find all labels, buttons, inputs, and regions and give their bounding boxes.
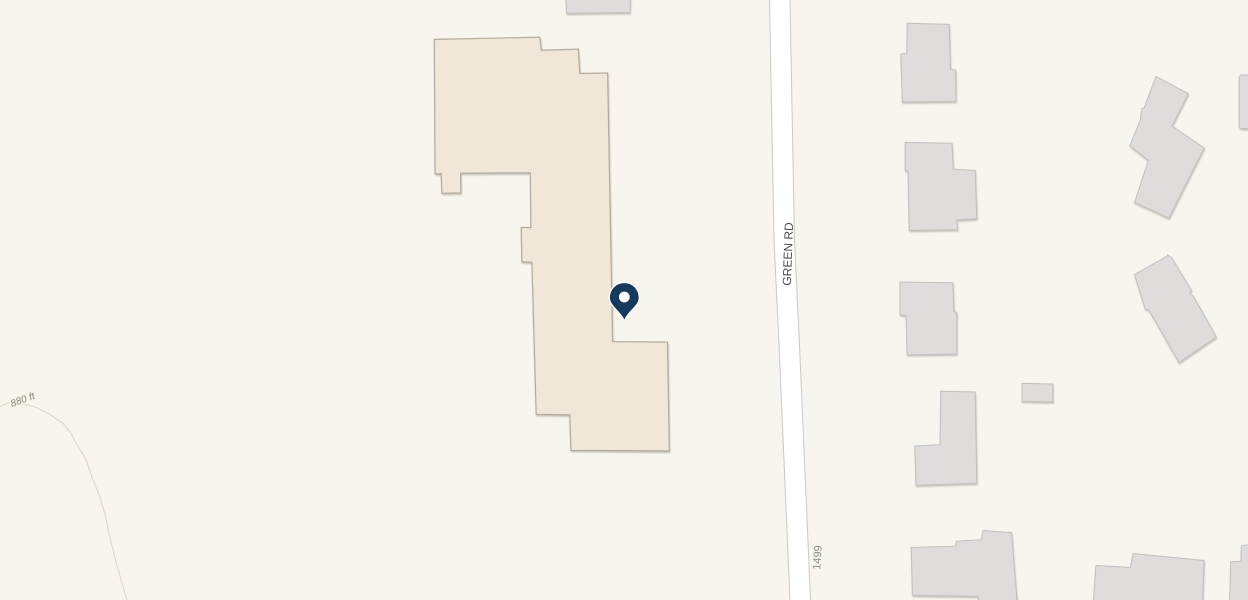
- svg-text:1499: 1499: [811, 545, 825, 570]
- svg-text:GREEN RD: GREEN RD: [780, 222, 796, 286]
